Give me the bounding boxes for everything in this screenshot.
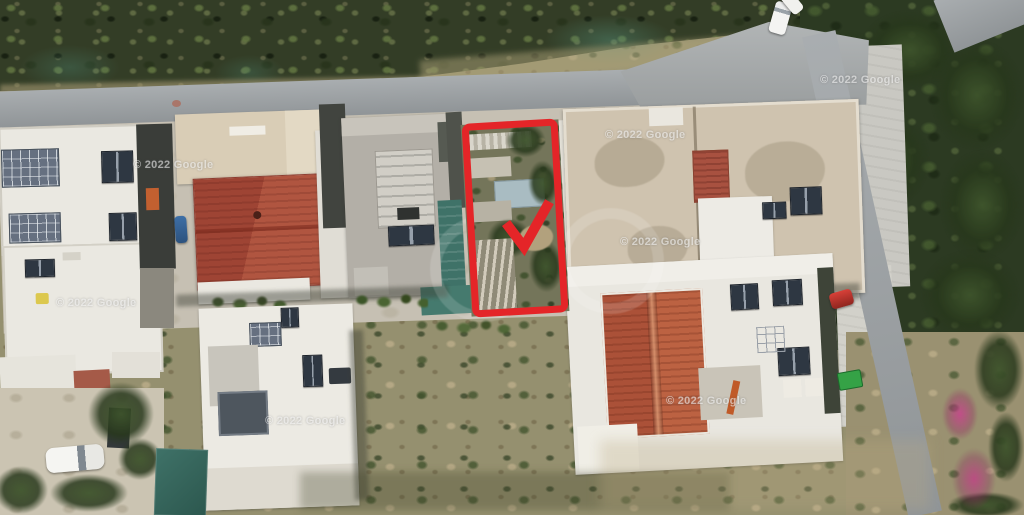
road-mark-dot (172, 100, 181, 107)
watermark-ring (558, 208, 664, 314)
building-topleft (0, 124, 142, 256)
skylight (249, 322, 282, 347)
skylight (9, 212, 62, 243)
blue-car (174, 216, 188, 244)
alley-dark (136, 124, 176, 270)
parapet-band (341, 114, 448, 137)
roof-notch (229, 125, 265, 135)
roof-stain (594, 136, 666, 188)
tree (940, 150, 1024, 260)
rooftop-dark-object (329, 367, 352, 384)
roof-ridge (196, 224, 324, 234)
solar-panel (730, 283, 759, 310)
solar-panel (762, 201, 787, 219)
google-watermark: © 2022 Google (133, 159, 213, 171)
google-watermark: © 2022 Google (56, 297, 136, 309)
white-car-parked (45, 444, 105, 474)
roof-units (783, 378, 824, 398)
roof-vent (63, 252, 81, 260)
gable-ridge (646, 292, 663, 434)
small-roof-white (0, 355, 77, 392)
tree (930, 40, 1024, 150)
skylight (1, 148, 60, 188)
scrub-tan-tint (600, 440, 930, 510)
solar-panel (790, 186, 823, 215)
google-watermark: © 2022 Google (820, 74, 900, 86)
google-watermark: © 2022 Google (620, 236, 700, 248)
google-watermark: © 2022 Google (605, 129, 685, 141)
solar-panel (109, 212, 138, 241)
small-roof-white (112, 352, 160, 378)
rooftop-object-yellow (36, 293, 49, 304)
alley-concrete (140, 268, 174, 328)
google-watermark: © 2022 Google (265, 415, 345, 427)
skylight-grid (756, 326, 785, 353)
teal-structure-bottom (154, 448, 208, 515)
chimney (253, 211, 261, 219)
courtyard-inset (217, 390, 269, 436)
rooftop-dark-object (397, 207, 420, 220)
satellite-map-view[interactable]: © 2022 Google © 2022 Google © 2022 Googl… (0, 0, 1024, 515)
roof-structure-white (649, 107, 684, 126)
tree (920, 250, 1020, 340)
solar-panel (25, 259, 55, 278)
google-watermark: © 2022 Google (666, 395, 746, 407)
red-hip-roof-house (193, 173, 328, 291)
plot-check-marker (497, 196, 555, 256)
solar-panel (772, 279, 803, 307)
orange-container (146, 188, 160, 210)
solar-panel (388, 224, 435, 246)
solar-panel (302, 354, 323, 387)
solar-panel (101, 150, 134, 183)
red-tile-section (692, 149, 730, 202)
solar-panel (281, 307, 300, 328)
